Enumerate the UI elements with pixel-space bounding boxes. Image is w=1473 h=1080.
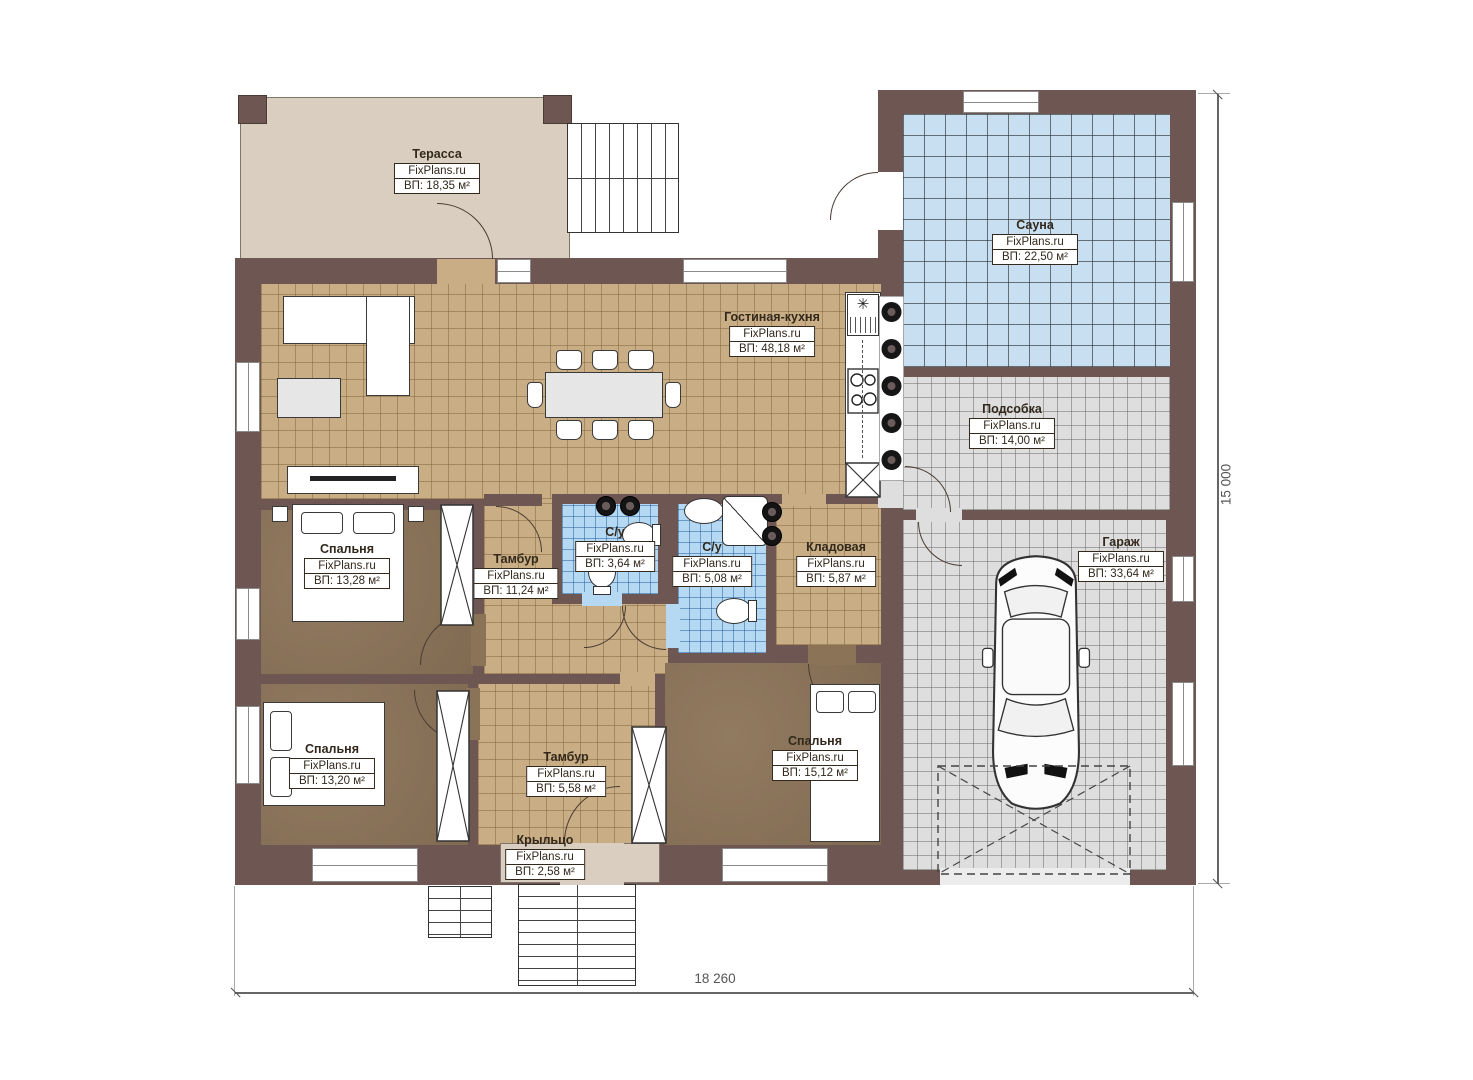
wc-2-door-opening: [666, 604, 680, 648]
storage-door-opening: [782, 494, 826, 506]
dimension-height: 15 000: [1219, 447, 1234, 523]
room-name: Гараж: [1102, 535, 1139, 549]
sauna-entry-opening: [878, 172, 903, 230]
counter-cabinet-icon: [845, 462, 881, 498]
room-label-bedroom-3: Спальня FixPlans.ru ВП: 15,12 м²: [772, 734, 858, 781]
toilet-tank: [748, 600, 757, 622]
room-area: ВП: 14,00 м²: [970, 434, 1054, 448]
brand-label: FixPlans.ru: [290, 759, 374, 774]
dining-chair: [628, 350, 654, 370]
room-label-bedroom-1: Спальня FixPlans.ru ВП: 13,28 м²: [304, 542, 390, 589]
room-area: ВП: 5,08 м²: [673, 572, 751, 586]
window-living-top-2: [683, 259, 787, 283]
room-name: Спальня: [788, 734, 842, 748]
garage-gate-zone: [936, 764, 1132, 876]
terrace-stairs: [567, 123, 679, 233]
room-name: Терасса: [412, 147, 462, 161]
extension-line: [1198, 883, 1230, 884]
flue-circles-icon: [879, 296, 904, 481]
brand-label: FixPlans.ru: [474, 569, 557, 584]
room-label-porch: Крыльцо FixPlans.ru ВП: 2,58 м²: [505, 833, 585, 880]
shower-icon: [722, 496, 768, 546]
stove-icon: [847, 368, 879, 414]
room-name: С/у: [702, 540, 721, 554]
pillow: [848, 691, 876, 713]
room-name: Спальня: [320, 542, 374, 556]
wardrobe-icon: [436, 690, 470, 842]
brand-label: FixPlans.ru: [506, 850, 584, 865]
brand-label: FixPlans.ru: [1079, 552, 1163, 567]
dining-table: [545, 372, 663, 418]
room-area: ВП: 5,87 м²: [797, 572, 875, 586]
brand-label: FixPlans.ru: [773, 751, 857, 766]
window-bedroom-1-left: [236, 588, 260, 640]
brand-label: FixPlans.ru: [970, 419, 1054, 434]
bedroom-3-door-opening: [808, 645, 856, 665]
washer-icon: [620, 496, 640, 516]
nightstand: [272, 506, 288, 522]
room-area: ВП: 3,64 м²: [576, 557, 654, 571]
room-name: Кладовая: [806, 540, 866, 554]
pillow: [301, 512, 343, 534]
room-name: Подсобка: [982, 402, 1042, 416]
window-bedroom-2-left: [236, 706, 260, 784]
dining-chair: [592, 350, 618, 370]
room-area: ВП: 22,50 м²: [993, 250, 1077, 264]
washer-icon: [762, 502, 782, 522]
room-label-tambour-2: Тамбур FixPlans.ru ВП: 5,58 м²: [526, 750, 606, 797]
window-garage-right-1: [1172, 556, 1194, 602]
room-area: ВП: 18,35 м²: [395, 179, 479, 193]
toilet-tank: [593, 586, 611, 595]
room-name: Тамбур: [543, 750, 588, 764]
dining-chair: [556, 350, 582, 370]
pillow: [353, 512, 395, 534]
room-area: ВП: 13,20 м²: [290, 774, 374, 788]
window-bedroom-3-bottom: [722, 848, 828, 882]
room-area: ВП: 5,58 м²: [527, 782, 605, 796]
brand-label: FixPlans.ru: [395, 164, 479, 179]
brand-label: FixPlans.ru: [527, 767, 605, 782]
window-living-left: [236, 362, 260, 432]
room-name: Сауна: [1016, 218, 1054, 232]
floor-plan: ✳: [0, 0, 1473, 1080]
room-label-storage: Кладовая FixPlans.ru ВП: 5,87 м²: [796, 540, 876, 587]
tv: [310, 476, 396, 481]
coffee-table: [277, 378, 341, 418]
brand-label: FixPlans.ru: [993, 235, 1077, 250]
water-heater: ✳: [847, 294, 879, 336]
room-label-tambour-1: Тамбур FixPlans.ru ВП: 11,24 м²: [473, 552, 558, 599]
counter-centerline: [862, 340, 863, 458]
washer-icon: [762, 526, 782, 546]
side-stairs: [428, 886, 492, 938]
room-label-living-kitchen: Гостиная-кухня FixPlans.ru ВП: 48,18 м²: [724, 310, 820, 357]
room-area: ВП: 13,28 м²: [305, 574, 389, 588]
brand-label: FixPlans.ru: [576, 542, 654, 557]
pillow: [816, 691, 844, 713]
extension-line: [234, 886, 235, 996]
extension-line: [1193, 886, 1194, 996]
wardrobe-icon: [440, 504, 474, 626]
terrace-post-right: [543, 95, 572, 124]
dimension-width: 18 260: [650, 971, 780, 986]
washer-icon: [596, 496, 616, 516]
room-name: Тамбур: [493, 552, 538, 566]
terrace-door-opening: [437, 259, 495, 284]
room-label-utility: Подсобка FixPlans.ru ВП: 14,00 м²: [969, 402, 1055, 449]
brand-label: FixPlans.ru: [797, 557, 875, 572]
dining-chair: [556, 420, 582, 440]
room-area: ВП: 2,58 м²: [506, 865, 584, 879]
sofa-chaise: [366, 296, 410, 396]
tambour-passage-opening: [620, 672, 655, 686]
room-name: Спальня: [305, 742, 359, 756]
room-name: С/у: [605, 525, 624, 539]
dining-chair: [527, 382, 543, 408]
room-name: Гостиная-кухня: [724, 310, 820, 324]
room-name: Крыльцо: [517, 833, 574, 847]
room-area: ВП: 33,64 м²: [1079, 567, 1163, 581]
brand-label: FixPlans.ru: [673, 557, 751, 572]
window-sauna-right: [1172, 202, 1194, 282]
brand-label: FixPlans.ru: [730, 327, 814, 342]
room-label-terrace: Терасса FixPlans.ru ВП: 18,35 м²: [394, 147, 480, 194]
dining-chair: [628, 420, 654, 440]
room-area: ВП: 11,24 м²: [474, 584, 557, 598]
room-label-sauna: Сауна FixPlans.ru ВП: 22,50 м²: [992, 218, 1078, 265]
dimension-line-bottom: [235, 992, 1194, 994]
room-area: ВП: 48,18 м²: [730, 342, 814, 356]
room-label-wc-2: С/у FixPlans.ru ВП: 5,08 м²: [672, 540, 752, 587]
room-label-wc-1: С/у FixPlans.ru ВП: 3,64 м²: [575, 525, 655, 572]
sauna-entry-arc: [830, 172, 878, 220]
nightstand: [408, 506, 424, 522]
room-label-garage: Гараж FixPlans.ru ВП: 33,64 м²: [1078, 535, 1164, 582]
tambour-1-top-wall-stub: [484, 494, 542, 506]
window-garage-right-2: [1172, 682, 1194, 766]
sink-icon: [684, 498, 724, 524]
window-sauna-top: [963, 91, 1039, 113]
room-label-bedroom-2: Спальня FixPlans.ru ВП: 13,20 м²: [289, 742, 375, 789]
window-bedroom-2-bottom: [312, 848, 418, 882]
room-area: ВП: 15,12 м²: [773, 766, 857, 780]
porch-stairs: [518, 884, 636, 986]
terrace-post-left: [238, 95, 267, 124]
window-living-top-1: [497, 259, 531, 283]
dining-chair: [665, 382, 681, 408]
wardrobe-icon: [631, 726, 667, 844]
dining-chair: [592, 420, 618, 440]
brand-label: FixPlans.ru: [305, 559, 389, 574]
toilet-icon: [716, 598, 752, 624]
